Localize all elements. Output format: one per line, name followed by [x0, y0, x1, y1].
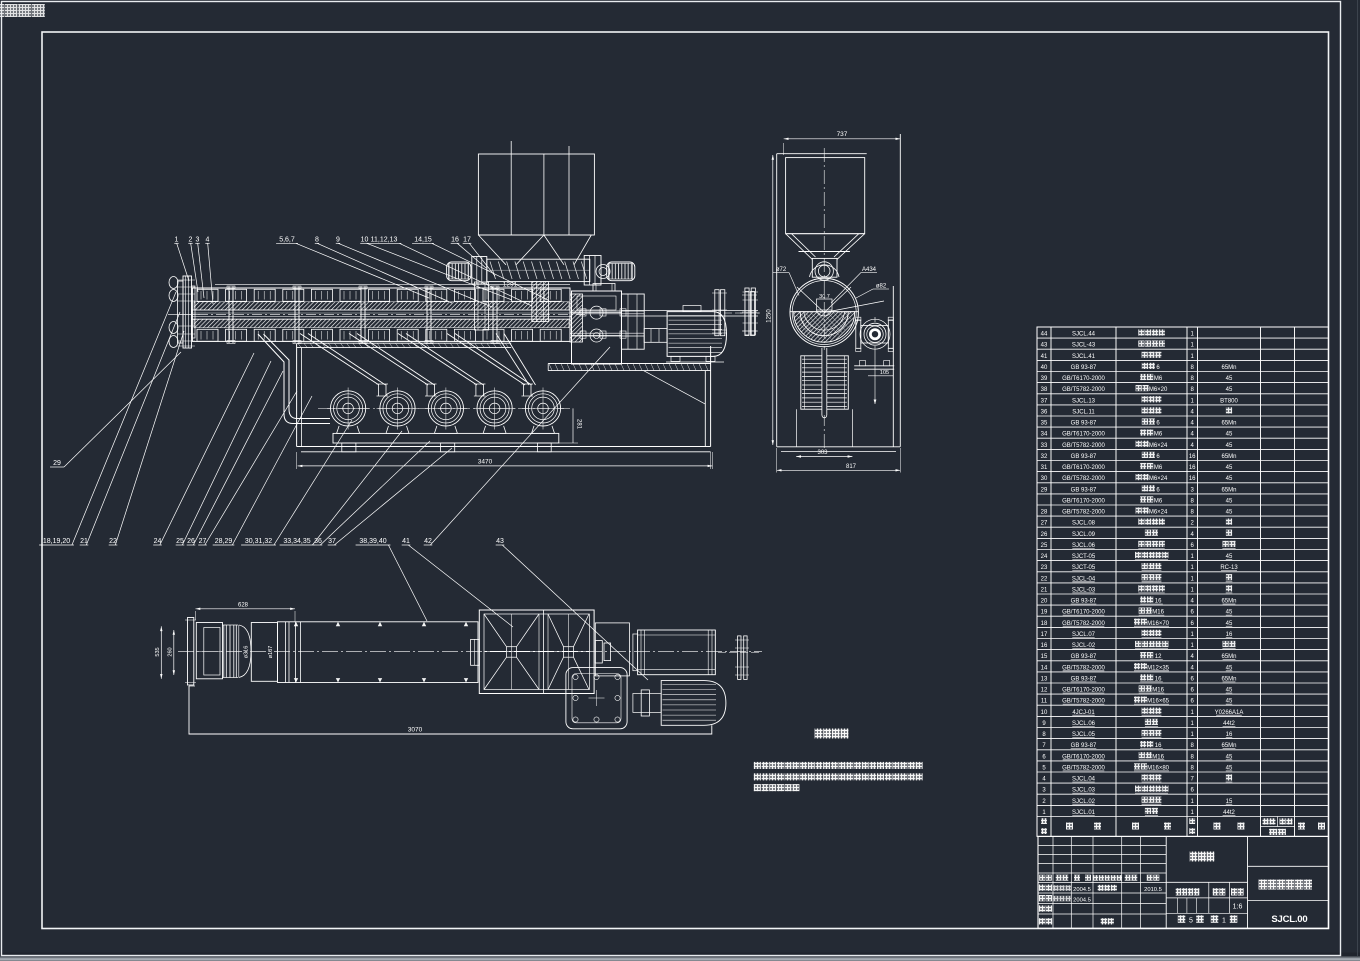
svg-text:37: 37 [1041, 398, 1048, 404]
svg-text:1:6: 1:6 [1233, 904, 1243, 911]
svg-text:GB/T5782-2000: GB/T5782-2000 [1062, 387, 1105, 393]
svg-text:43: 43 [496, 538, 504, 545]
svg-text:45: 45 [1226, 665, 1233, 671]
svg-text:16: 16 [1189, 465, 1196, 471]
svg-text:25: 25 [1041, 543, 1048, 549]
svg-text:GB 93-87: GB 93-87 [1071, 487, 1097, 493]
svg-text:45: 45 [1226, 443, 1233, 449]
svg-text:GB/T5782-2000: GB/T5782-2000 [1062, 665, 1105, 671]
svg-text:ø82: ø82 [876, 284, 887, 290]
svg-text:11,12,13: 11,12,13 [371, 237, 398, 244]
svg-text:GB/T6170-2000: GB/T6170-2000 [1062, 499, 1105, 505]
svg-text:17: 17 [463, 237, 471, 244]
svg-text:41: 41 [1041, 354, 1048, 360]
svg-text:5: 5 [1189, 918, 1193, 925]
svg-text:41: 41 [402, 538, 410, 545]
svg-text:GB/T6170-2000: GB/T6170-2000 [1062, 610, 1105, 616]
svg-text:40: 40 [1041, 365, 1048, 371]
svg-text:1: 1 [1222, 918, 1226, 925]
svg-text:36: 36 [314, 538, 322, 545]
svg-text:35: 35 [1041, 421, 1048, 427]
svg-text:45: 45 [1226, 476, 1233, 482]
svg-text:M6×24: M6×24 [1149, 443, 1168, 449]
svg-text:32: 32 [1041, 454, 1048, 460]
svg-text:105: 105 [880, 370, 889, 376]
svg-text:43: 43 [1041, 343, 1048, 349]
svg-text:16: 16 [1226, 632, 1233, 638]
svg-text:260: 260 [167, 647, 173, 656]
svg-text:GB 93-87: GB 93-87 [1071, 365, 1097, 371]
svg-text:GB/T6170-2000: GB/T6170-2000 [1062, 432, 1105, 438]
svg-text:535: 535 [155, 647, 161, 656]
svg-text:GB 93-87: GB 93-87 [1071, 454, 1097, 460]
svg-text:65Mn: 65Mn [1221, 421, 1236, 427]
svg-text:11: 11 [1041, 699, 1048, 705]
svg-text:M16: M16 [1152, 754, 1164, 760]
svg-text:65Mn: 65Mn [1221, 743, 1236, 749]
svg-text:M6: M6 [1154, 499, 1163, 505]
svg-text:16: 16 [1155, 677, 1162, 683]
svg-text:SJCL.44: SJCL.44 [1072, 332, 1096, 338]
svg-text:65Mn: 65Mn [1221, 599, 1236, 605]
svg-text:16: 16 [451, 237, 459, 244]
svg-text:15: 15 [1041, 654, 1048, 660]
svg-text:SJCL.06: SJCL.06 [1072, 721, 1096, 727]
svg-text:GB/T5782-2000: GB/T5782-2000 [1062, 766, 1105, 772]
svg-text:M6: M6 [1154, 465, 1163, 471]
svg-text:SJCL.08: SJCL.08 [1072, 521, 1096, 527]
svg-text:45: 45 [1226, 688, 1233, 694]
svg-text:SJCL.05: SJCL.05 [1072, 732, 1096, 738]
svg-text:18: 18 [1041, 621, 1048, 627]
svg-text:16: 16 [1189, 454, 1196, 460]
svg-text:GB 93-87: GB 93-87 [1071, 677, 1097, 683]
svg-text:17: 17 [1041, 632, 1048, 638]
svg-text:19: 19 [1041, 610, 1048, 616]
svg-text:45: 45 [1226, 610, 1233, 616]
svg-text:M6×20: M6×20 [1149, 387, 1168, 393]
svg-text:2004.5: 2004.5 [1073, 897, 1091, 903]
svg-text:ø72: ø72 [776, 267, 787, 273]
svg-text:14,15: 14,15 [414, 237, 432, 244]
svg-text:39: 39 [1041, 376, 1048, 382]
svg-text:10: 10 [361, 237, 369, 244]
svg-text:12: 12 [1155, 654, 1162, 660]
svg-text:12: 12 [1041, 688, 1048, 694]
svg-text:2: 2 [189, 237, 193, 244]
svg-text:37: 37 [328, 538, 336, 545]
svg-text:M6×24: M6×24 [1149, 510, 1168, 516]
svg-text:M6: M6 [1154, 376, 1163, 382]
svg-text:33,34,35: 33,34,35 [283, 538, 310, 545]
svg-text:M16: M16 [1152, 688, 1164, 694]
svg-text:GB/T6170-2000: GB/T6170-2000 [1062, 465, 1105, 471]
svg-text:45: 45 [1226, 387, 1233, 393]
svg-text:27: 27 [1041, 521, 1048, 527]
svg-text:10: 10 [1041, 710, 1048, 716]
svg-text:22: 22 [1041, 576, 1048, 582]
svg-text:SJCL-04: SJCL-04 [1072, 576, 1096, 582]
svg-text:36: 36 [1041, 410, 1048, 416]
svg-text:20: 20 [1041, 599, 1048, 605]
svg-text:45: 45 [1226, 754, 1233, 760]
svg-text:281: 281 [576, 419, 582, 430]
svg-text:SJCL.41: SJCL.41 [1072, 354, 1096, 360]
svg-text:30: 30 [1041, 476, 1048, 482]
svg-text:SJCL.04: SJCL.04 [1072, 777, 1096, 783]
svg-text:GB/T5782-2000: GB/T5782-2000 [1062, 476, 1105, 482]
svg-text:26: 26 [1041, 532, 1048, 538]
svg-text:16: 16 [1041, 643, 1048, 649]
svg-text:M16: M16 [1152, 610, 1164, 616]
svg-text:16: 16 [1155, 743, 1162, 749]
svg-text:SJCL.01: SJCL.01 [1072, 810, 1096, 816]
svg-text:RC-13: RC-13 [1220, 565, 1238, 571]
svg-text:A434: A434 [862, 267, 877, 273]
svg-text:M16×65: M16×65 [1147, 699, 1170, 705]
svg-text:44t2: 44t2 [1223, 810, 1235, 816]
svg-text:29: 29 [53, 460, 61, 467]
svg-text:45: 45 [1226, 376, 1233, 382]
svg-text:14: 14 [1041, 665, 1048, 671]
svg-text:38,39,40: 38,39,40 [359, 538, 386, 545]
svg-text:GB/T6170-2000: GB/T6170-2000 [1062, 754, 1105, 760]
svg-text:33: 33 [1041, 443, 1048, 449]
svg-text:SJCL.07: SJCL.07 [1072, 632, 1096, 638]
svg-text:1: 1 [175, 237, 179, 244]
svg-text:13: 13 [1041, 677, 1048, 683]
svg-text:SJCL-02: SJCL-02 [1072, 643, 1096, 649]
svg-text:303: 303 [817, 450, 828, 456]
svg-text:45: 45 [1226, 554, 1233, 560]
svg-text:65Mn: 65Mn [1221, 487, 1236, 493]
svg-text:16: 16 [1189, 476, 1196, 482]
svg-text:38: 38 [1041, 387, 1048, 393]
svg-text:16: 16 [1155, 599, 1162, 605]
svg-text:4: 4 [206, 237, 210, 244]
svg-text:SJCL.09: SJCL.09 [1072, 532, 1096, 538]
svg-text:SJCL.06: SJCL.06 [1072, 543, 1096, 549]
svg-text:SJCL.00: SJCL.00 [1271, 914, 1307, 925]
svg-text:SJCT-05: SJCT-05 [1072, 565, 1096, 571]
svg-text:ø316: ø316 [244, 646, 250, 659]
svg-text:GB 93-87: GB 93-87 [1071, 654, 1097, 660]
svg-text:ø187: ø187 [268, 646, 274, 659]
svg-text:28,29: 28,29 [215, 538, 233, 545]
svg-text:GB/T6170-2000: GB/T6170-2000 [1062, 688, 1105, 694]
svg-text:34: 34 [1041, 432, 1048, 438]
svg-text:737: 737 [837, 131, 848, 138]
svg-text:GB/T5782-2000: GB/T5782-2000 [1062, 510, 1105, 516]
svg-text:45: 45 [1226, 699, 1233, 705]
svg-text:44: 44 [1041, 332, 1048, 338]
svg-text:SJCL-03: SJCL-03 [1072, 588, 1096, 594]
svg-text:65Mn: 65Mn [1221, 365, 1236, 371]
svg-text:16: 16 [1226, 732, 1233, 738]
svg-text:1291: 1291 [503, 282, 518, 289]
svg-text:817: 817 [846, 464, 857, 470]
svg-text:GB/T5782-2000: GB/T5782-2000 [1062, 443, 1105, 449]
svg-text:24: 24 [1041, 554, 1048, 560]
svg-text:M6×24: M6×24 [1149, 476, 1168, 482]
svg-text:GB 93-87: GB 93-87 [1071, 599, 1097, 605]
svg-text:M6: M6 [1154, 432, 1163, 438]
svg-text:45: 45 [1226, 432, 1233, 438]
svg-text:45: 45 [1226, 766, 1233, 772]
svg-text:SJCL.13: SJCL.13 [1072, 398, 1096, 404]
svg-text:1250: 1250 [767, 309, 773, 323]
svg-text:31: 31 [1041, 465, 1048, 471]
svg-text:SJCT-05: SJCT-05 [1072, 554, 1096, 560]
svg-text:28: 28 [1041, 510, 1048, 516]
svg-text:5,6,7: 5,6,7 [279, 237, 295, 244]
svg-text:21: 21 [1041, 588, 1048, 594]
svg-text:2004.5: 2004.5 [1073, 887, 1091, 893]
svg-text:9: 9 [336, 237, 340, 244]
svg-text:3: 3 [196, 237, 200, 244]
svg-text:44t2: 44t2 [1223, 721, 1235, 727]
svg-text:65Mn: 65Mn [1221, 654, 1236, 660]
svg-text:45: 45 [1226, 499, 1233, 505]
svg-text:8: 8 [315, 237, 319, 244]
svg-text:65Mn: 65Mn [1221, 677, 1236, 683]
svg-text:2010.5: 2010.5 [1144, 887, 1162, 893]
svg-text:45: 45 [1226, 465, 1233, 471]
svg-text:18,19,20: 18,19,20 [43, 538, 70, 545]
svg-text:GB 93-87: GB 93-87 [1071, 743, 1097, 749]
svg-text:SJCL-43: SJCL-43 [1072, 343, 1096, 349]
svg-text:SJCL.03: SJCL.03 [1072, 788, 1096, 794]
svg-text:M16×80: M16×80 [1147, 766, 1170, 772]
svg-text:65Mn: 65Mn [1221, 454, 1236, 460]
svg-text:GB/T5782-2000: GB/T5782-2000 [1062, 699, 1105, 705]
svg-text:BT800: BT800 [1220, 398, 1238, 404]
svg-text:GB/T6170-2000: GB/T6170-2000 [1062, 376, 1105, 382]
svg-text:3070: 3070 [408, 727, 423, 734]
svg-text:3470: 3470 [478, 459, 493, 466]
svg-text:SJCL.11: SJCL.11 [1072, 410, 1095, 416]
svg-text:45: 45 [1226, 510, 1233, 516]
svg-text:GB 93-87: GB 93-87 [1071, 421, 1097, 427]
svg-text:628: 628 [238, 602, 249, 608]
svg-text:23: 23 [1041, 565, 1048, 571]
svg-text:29: 29 [1041, 487, 1048, 493]
svg-text:30,31,32: 30,31,32 [245, 538, 272, 545]
svg-text:M12×35: M12×35 [1147, 665, 1170, 671]
